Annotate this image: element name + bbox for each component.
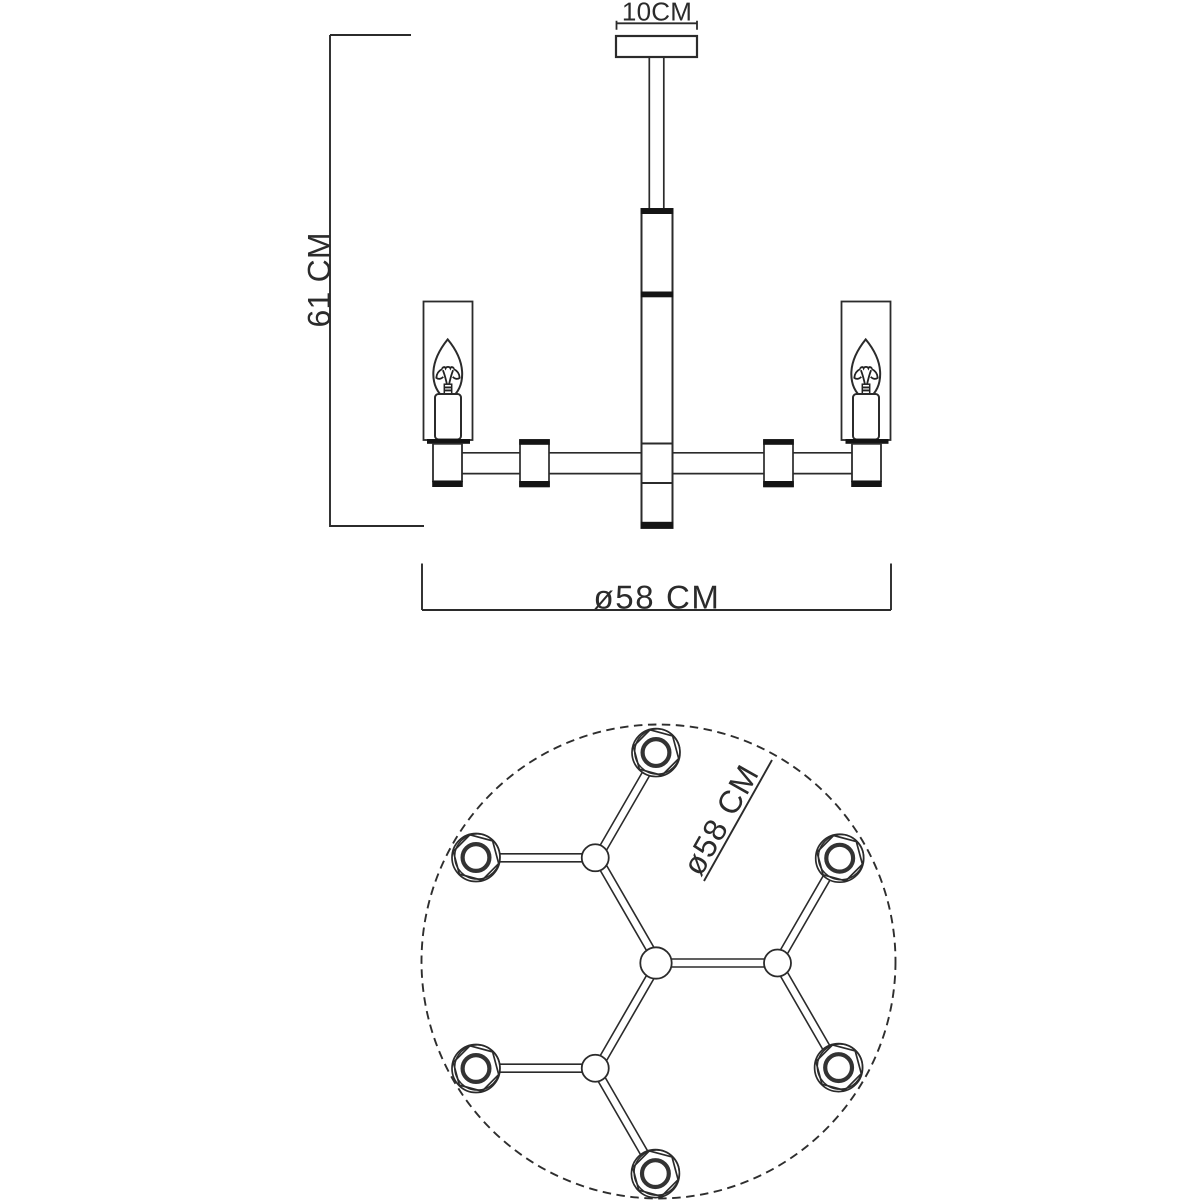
svg-text:ø58 CM: ø58 CM <box>594 579 721 616</box>
svg-text:61 CM: 61 CM <box>301 232 337 327</box>
